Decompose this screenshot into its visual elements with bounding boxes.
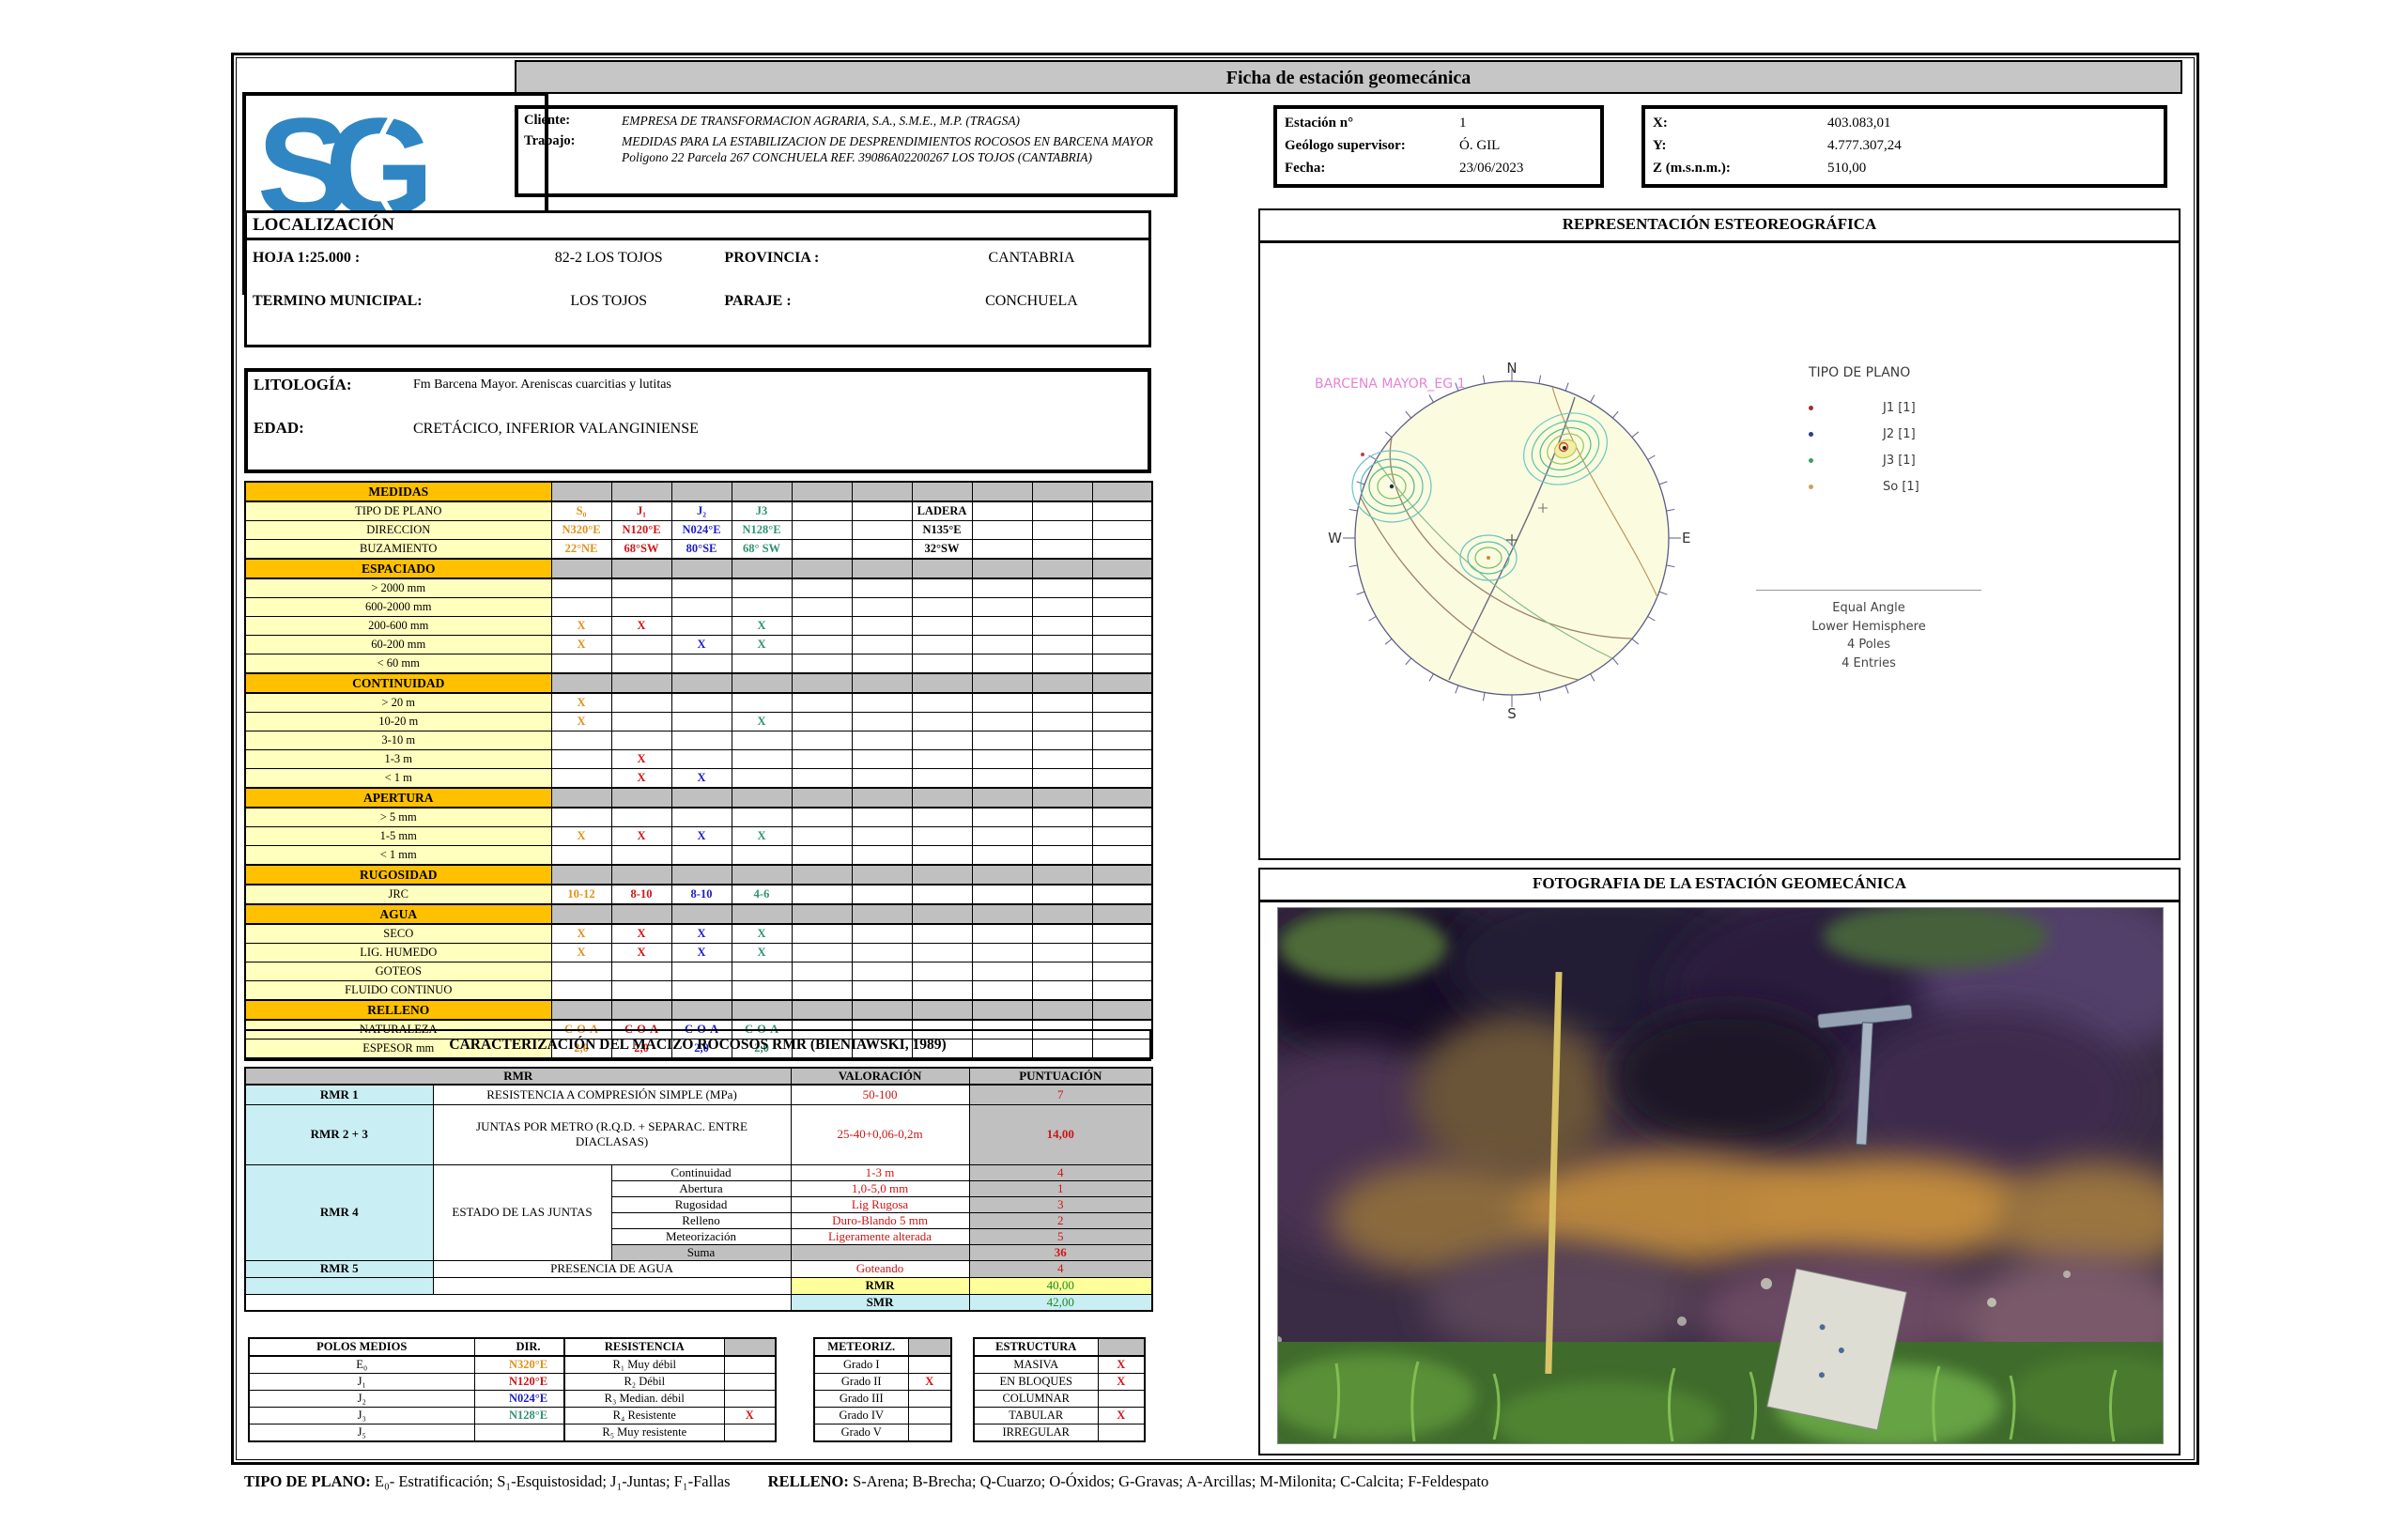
rmr4-sub-val: Ligeramente alterada bbox=[791, 1228, 969, 1244]
rmr4-sub-val: 1,0-5,0 mm bbox=[791, 1180, 969, 1196]
rmr4-sub-label: Meteorización bbox=[611, 1228, 791, 1244]
measures-data-row: > 5 mm bbox=[245, 808, 1152, 827]
rmr4-sub-pts: 4 bbox=[969, 1164, 1152, 1180]
station-value: 1 bbox=[1459, 112, 1467, 134]
measures-data-row: 200-600 mmXXX bbox=[245, 617, 1152, 636]
table-row: R₁ Muy débil bbox=[564, 1356, 776, 1374]
measures-section-row: RUGOSIDAD bbox=[245, 865, 1152, 885]
lithology-box: LITOLOGÍA: Fm Barcena Mayor. Areniscas c… bbox=[244, 368, 1151, 473]
measures-data-row: 600-2000 mm bbox=[245, 598, 1152, 617]
measures-data-row: BUZAMIENTO22°NE68°SW80°SE68° SW32°SW bbox=[245, 540, 1152, 560]
station-row: Estación n°1 bbox=[1285, 112, 1593, 134]
rmr5-desc: PRESENCIA DE AGUA bbox=[433, 1260, 791, 1277]
table-row: R₄ ResistenteX bbox=[564, 1408, 776, 1424]
stereonet-box: REPRESENTACIÓN ESTEOREOGRÁFICA bbox=[1258, 208, 2181, 860]
age-value: CRETÁCICO, INFERIOR VALANGINIENSE bbox=[413, 419, 1142, 438]
rmr4-sub-label: Relleno bbox=[611, 1212, 791, 1228]
table-row: IRREGULAR bbox=[974, 1424, 1145, 1442]
legend-marker-icon bbox=[1809, 432, 1813, 437]
footer-legend: TIPO DE PLANO: E₀- Estratificación; S₁-E… bbox=[244, 1472, 2179, 1491]
coordinate-label: Z (m.s.n.m.): bbox=[1653, 157, 1827, 179]
measures-data-row: 60-200 mmXXX bbox=[245, 636, 1152, 654]
rmr1-desc: RESISTENCIA A COMPRESIÓN SIMPLE (MPa) bbox=[433, 1085, 791, 1104]
rmr4-sub-pts: 2 bbox=[969, 1212, 1152, 1228]
lithology-value: Fm Barcena Mayor. Areniscas cuarcitias y… bbox=[413, 376, 1142, 394]
measures-data-row: 10-20 mXX bbox=[245, 713, 1152, 731]
lithology-label: LITOLOGÍA: bbox=[254, 376, 413, 394]
table-row: Grado I bbox=[814, 1356, 951, 1374]
rmr-header: RMR bbox=[245, 1068, 791, 1085]
table-row: Grado V bbox=[814, 1424, 951, 1442]
municipality-label: TERMINO MUNICIPAL: bbox=[253, 293, 493, 310]
coordinate-value: 4.777.307,24 bbox=[1827, 134, 1902, 157]
province-label: PROVINCIA : bbox=[724, 250, 920, 267]
legend-label: So [1] bbox=[1883, 480, 1919, 494]
measures-data-row: SECOXXXX bbox=[245, 924, 1152, 944]
measures-data-row: > 20 mX bbox=[245, 693, 1152, 713]
coordinate-label: Y: bbox=[1653, 134, 1827, 157]
station-value: 23/06/2023 bbox=[1459, 157, 1523, 179]
coordinate-label: X: bbox=[1653, 112, 1827, 134]
province-value: CANTABRIA bbox=[920, 250, 1143, 267]
measures-data-row: < 1 mXX bbox=[245, 769, 1152, 789]
client-label: Cliente: bbox=[524, 113, 614, 130]
rmr-table: RMR VALORACIÓN PUNTUACIÓN RMR 1 RESISTEN… bbox=[244, 1067, 1153, 1312]
table-row: Grado IV bbox=[814, 1408, 951, 1424]
stereonet-footnote-line: 4 Poles bbox=[1756, 636, 1981, 654]
stereonet-plot: N E S W BARCENA MAYOR_EG 1 bbox=[1260, 241, 2179, 859]
rmr4-sub-label: Continuidad bbox=[611, 1164, 791, 1180]
rmr4-suma-val bbox=[791, 1244, 969, 1260]
localization-title: LOCALIZACIÓN bbox=[247, 213, 1148, 240]
photo-title: FOTOGRAFIA DE LA ESTACIÓN GEOMECÁNICA bbox=[1260, 870, 2179, 902]
stereonet-legend: TIPO DE PLANO J1 [1]J2 [1]J3 [1]So [1] bbox=[1809, 365, 2025, 506]
sheet-label: HOJA 1:25.000 : bbox=[253, 250, 493, 267]
rmr4-suma-pts: 36 bbox=[969, 1244, 1152, 1260]
compass-n: N bbox=[1506, 360, 1517, 377]
legend-entry: J1 [1] bbox=[1809, 401, 2025, 415]
legend-label: J2 [1] bbox=[1883, 427, 1916, 441]
station-row: Fecha:23/06/2023 bbox=[1285, 157, 1593, 179]
coordinates-box: X:403.083,01Y:4.777.307,24Z (m.s.n.m.):5… bbox=[1641, 105, 2167, 188]
measures-data-row: > 2000 mm bbox=[245, 578, 1152, 598]
legend-entry: So [1] bbox=[1809, 480, 2025, 494]
measures-table: MEDIDASTIPO DE PLANOS₀J₁J₂J3LADERADIRECC… bbox=[244, 481, 1153, 1059]
job-label: Trabajo: bbox=[524, 133, 614, 166]
rmr23-pts: 14,00 bbox=[969, 1104, 1152, 1164]
rmr4-desc: ESTADO DE LAS JUNTAS bbox=[433, 1164, 611, 1260]
stereonet-footnote-line: Lower Hemisphere bbox=[1756, 618, 1981, 637]
station-label: Geólogo supervisor: bbox=[1285, 134, 1459, 157]
measures-data-row: JRC10-128-108-104-6 bbox=[245, 885, 1152, 904]
stereonet-footnote: Equal AngleLower Hemisphere4 Poles4 Entr… bbox=[1756, 590, 1981, 672]
rmr4-sub-pts: 3 bbox=[969, 1196, 1152, 1212]
paraje-label: PARAJE : bbox=[724, 293, 920, 310]
rmr5-label: RMR 5 bbox=[245, 1260, 433, 1277]
rmr5-val: Goteando bbox=[791, 1260, 969, 1277]
rmr4-label: RMR 4 bbox=[245, 1164, 433, 1260]
table-row: MASIVAX bbox=[974, 1356, 1145, 1374]
legend-label: J1 [1] bbox=[1883, 401, 1916, 415]
relleno-legend-label: RELLENO: bbox=[768, 1472, 849, 1490]
rmr1-val: 50-100 bbox=[791, 1085, 969, 1104]
paraje-value: CONCHUELA bbox=[920, 293, 1143, 310]
rmr4-suma-label: Suma bbox=[611, 1244, 791, 1260]
legend-label: J3 [1] bbox=[1883, 454, 1916, 468]
coordinate-value: 510,00 bbox=[1827, 157, 1866, 179]
measures-section-row: MEDIDAS bbox=[245, 482, 1152, 501]
table-row: R₅ Muy resistente bbox=[564, 1424, 776, 1442]
page-title: Ficha de estación geomecánica bbox=[515, 60, 2182, 94]
relleno-legend: S-Arena; B-Brecha; Q-Cuarzo; O-Óxidos; G… bbox=[853, 1472, 1488, 1490]
client-value: EMPRESA DE TRANSFORMACION AGRARIA, S.A.,… bbox=[622, 113, 1168, 130]
rmr23-val: 25-40+0,06-0,2m bbox=[791, 1104, 969, 1164]
legend-entry: J2 [1] bbox=[1809, 427, 2025, 441]
strength-table: RESISTENCIAR₁ Muy débilR₂ DébilR₃ Median… bbox=[563, 1337, 777, 1442]
puntuacion-header: PUNTUACIÓN bbox=[969, 1068, 1152, 1085]
station-row: Geólogo supervisor:Ó. GIL bbox=[1285, 134, 1593, 157]
table-row: R₂ Débil bbox=[564, 1374, 776, 1391]
station-label: Estación n° bbox=[1285, 112, 1459, 134]
rmr4-sub-label: Abertura bbox=[611, 1180, 791, 1196]
legend-entry: J3 [1] bbox=[1809, 454, 2025, 468]
rmr4-sub-pts: 5 bbox=[969, 1228, 1152, 1244]
client-box: Cliente: EMPRESA DE TRANSFORMACION AGRAR… bbox=[515, 105, 1178, 197]
rmr1-label: RMR 1 bbox=[245, 1085, 433, 1104]
compass-w: W bbox=[1328, 530, 1342, 547]
coordinate-row: Y:4.777.307,24 bbox=[1653, 134, 2156, 157]
coordinate-row: X:403.083,01 bbox=[1653, 112, 2156, 134]
weathering-table: METEORIZ.Grado IGrado IIXGrado IIIGrado … bbox=[813, 1337, 952, 1442]
measures-data-row: 1-3 mX bbox=[245, 750, 1152, 769]
legend-marker-icon bbox=[1809, 458, 1813, 463]
coordinate-value: 403.083,01 bbox=[1827, 112, 1891, 134]
measures-data-row: < 1 mm bbox=[245, 846, 1152, 866]
measures-data-row: 3-10 m bbox=[245, 731, 1152, 750]
table-row: Grado III bbox=[814, 1391, 951, 1408]
compass-s: S bbox=[1507, 705, 1517, 722]
localization-box: LOCALIZACIÓN HOJA 1:25.000 : 82-2 LOS TO… bbox=[244, 210, 1151, 347]
stereonet-footnote-line: Equal Angle bbox=[1756, 599, 1981, 618]
job-value: MEDIDAS PARA LA ESTABILIZACION DE DESPRE… bbox=[622, 133, 1168, 166]
photo-box: FOTOGRAFIA DE LA ESTACIÓN GEOMECÁNICA bbox=[1258, 868, 2181, 1455]
stereonet-title: REPRESENTACIÓN ESTEOREOGRÁFICA bbox=[1260, 210, 2179, 243]
station-box: Estación n°1Geólogo supervisor:Ó. GILFec… bbox=[1273, 105, 1604, 188]
measures-data-row: 1-5 mmXXXX bbox=[245, 827, 1152, 846]
measures-data-row: LIG. HUMEDOXXXX bbox=[245, 944, 1152, 962]
legend-title: TIPO DE PLANO bbox=[1809, 365, 2025, 380]
measures-section-row: CONTINUIDAD bbox=[245, 673, 1152, 693]
planes-legend: E₀- Estratificación; S₁-Esquistosidad; J… bbox=[375, 1472, 731, 1490]
rmr4-sub-label: Rugosidad bbox=[611, 1196, 791, 1212]
legend-marker-icon bbox=[1809, 406, 1813, 410]
age-label: EDAD: bbox=[254, 419, 413, 438]
measures-section-row: ESPACIADO bbox=[245, 559, 1152, 578]
rmr-section-title: CARACTERIZACIÓN DEL MACIZO ROCOSOS RMR (… bbox=[244, 1029, 1151, 1061]
coordinate-row: Z (m.s.n.m.):510,00 bbox=[1653, 157, 2156, 179]
rmr-total-label: RMR bbox=[791, 1277, 969, 1294]
table-row: R₃ Median. débil bbox=[564, 1391, 776, 1408]
measures-section-row: RELLENO bbox=[245, 1000, 1152, 1020]
table-row: Grado IIX bbox=[814, 1374, 951, 1391]
measures-section-row: AGUA bbox=[245, 904, 1152, 924]
measures-data-row: < 60 mm bbox=[245, 654, 1152, 674]
station-label: Fecha: bbox=[1285, 157, 1459, 179]
measures-section-row: APERTURA bbox=[245, 788, 1152, 808]
stereonet-footnote-line: 4 Entries bbox=[1756, 654, 1981, 673]
rmr4-sub-val: Duro-Blando 5 mm bbox=[791, 1212, 969, 1228]
station-value: Ó. GIL bbox=[1459, 134, 1500, 157]
rmr23-desc: JUNTAS POR METRO (R.Q.D. + SEPARAC. ENTR… bbox=[433, 1104, 791, 1164]
stereonet-dataset-label: BARCENA MAYOR_EG 1 bbox=[1315, 377, 1466, 392]
table-row: COLUMNAR bbox=[974, 1391, 1145, 1408]
rmr4-sub-pts: 1 bbox=[969, 1180, 1152, 1196]
table-row: TABULARX bbox=[974, 1408, 1145, 1424]
planes-legend-label: TIPO DE PLANO: bbox=[244, 1472, 371, 1490]
measures-data-row: GOTEOS bbox=[245, 962, 1152, 981]
structure-table: ESTRUCTURAMASIVAXEN BLOQUESXCOLUMNARTABU… bbox=[973, 1337, 1146, 1442]
measures-data-row: TIPO DE PLANOS₀J₁J₂J3LADERA bbox=[245, 501, 1152, 521]
sheet-value: 82-2 LOS TOJOS bbox=[493, 250, 724, 267]
outcrop-photo bbox=[1277, 907, 2164, 1444]
legend-marker-icon bbox=[1809, 485, 1813, 489]
table-row: EN BLOQUESX bbox=[974, 1374, 1145, 1391]
rmr4-sub-val: 1-3 m bbox=[791, 1164, 969, 1180]
rmr1-pts: 7 bbox=[969, 1085, 1152, 1104]
rmr4-sub-val: Lig Rugosa bbox=[791, 1196, 969, 1212]
valoracion-header: VALORACIÓN bbox=[791, 1068, 969, 1085]
measures-data-row: FLUIDO CONTINUO bbox=[245, 981, 1152, 1001]
smr-total-label: SMR bbox=[791, 1294, 969, 1311]
smr-total-value: 42,00 bbox=[969, 1294, 1152, 1311]
rmr23-label: RMR 2 + 3 bbox=[245, 1104, 433, 1164]
municipality-value: LOS TOJOS bbox=[493, 293, 724, 310]
rmr-total-value: 40,00 bbox=[969, 1277, 1152, 1294]
compass-e: E bbox=[1682, 530, 1690, 547]
measures-data-row: DIRECCIONN320°EN120°EN024°EN128°EN135°E bbox=[245, 521, 1152, 540]
rmr5-pts: 4 bbox=[969, 1260, 1152, 1277]
